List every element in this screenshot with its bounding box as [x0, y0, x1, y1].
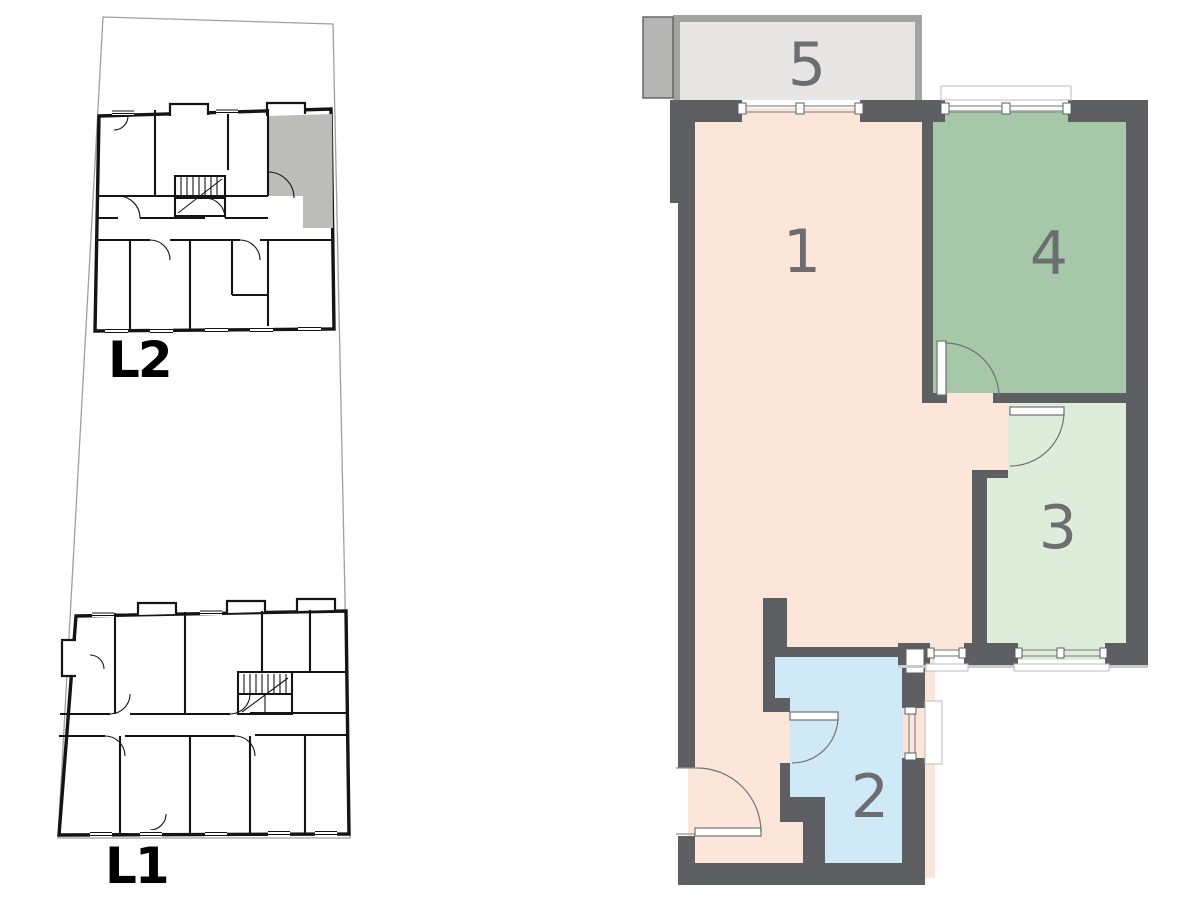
window-sill-bottom-right — [1014, 664, 1109, 671]
level-label-l2: L2 — [108, 331, 171, 389]
level-label-l1: L1 — [105, 837, 168, 895]
duct-shaft — [906, 649, 924, 673]
site-plan-l1 — [59, 599, 349, 837]
room-3-door-leaf — [1010, 407, 1064, 415]
window-sill-right — [925, 701, 942, 764]
room-1-label: 1 — [783, 217, 821, 287]
unit-floor-plan: 1 2 3 4 5 — [643, 15, 1148, 885]
hall-sliver-area — [925, 472, 972, 650]
hall-notch-area — [925, 393, 1008, 472]
room-4-label: 4 — [1030, 219, 1068, 289]
room-5-label: 5 — [788, 30, 826, 100]
balcony-area — [643, 15, 922, 100]
room-2-label: 2 — [851, 762, 889, 832]
floor-plan-sheet: L2 L1 — [0, 0, 1200, 900]
plan-drawing: L2 L1 — [0, 0, 1200, 900]
entry-door-leaf — [695, 828, 761, 836]
window-sill-bottom-left — [926, 664, 968, 671]
balcony-side-panel — [643, 17, 673, 98]
site-plan-l2 — [95, 103, 334, 334]
room-4-door-leaf — [937, 341, 946, 395]
room-3-label: 3 — [1039, 493, 1077, 563]
window-sill-top — [941, 86, 1071, 100]
room-2-door-leaf — [790, 712, 838, 720]
